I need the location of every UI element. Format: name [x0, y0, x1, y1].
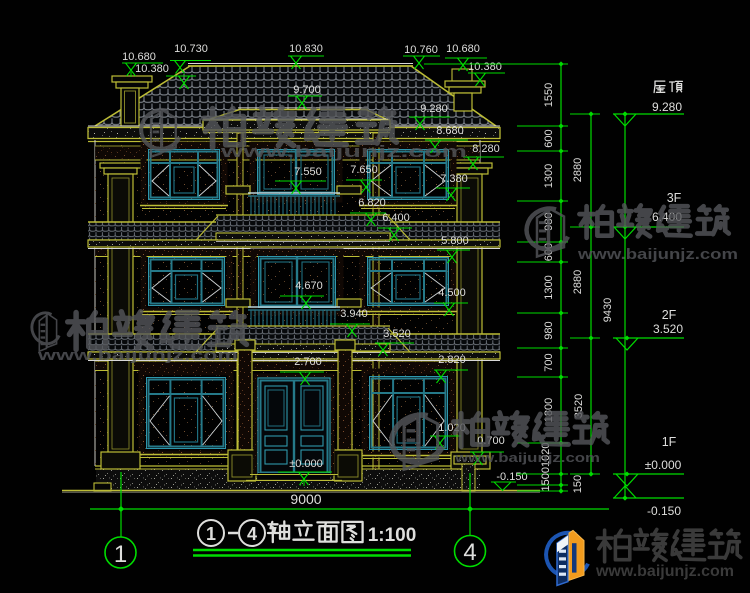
- svg-text:4.500: 4.500: [438, 287, 466, 299]
- svg-text:±0.000: ±0.000: [289, 458, 323, 470]
- svg-text:2880: 2880: [572, 158, 584, 182]
- svg-text:7.650: 7.650: [350, 164, 378, 176]
- svg-text:1: 1: [206, 524, 216, 544]
- svg-text:600: 600: [543, 129, 555, 147]
- svg-text:5.800: 5.800: [441, 235, 469, 247]
- svg-text:www.baijunjz.com: www.baijunjz.com: [36, 347, 238, 364]
- svg-text:9.280: 9.280: [652, 100, 682, 114]
- svg-text:2880: 2880: [572, 270, 584, 294]
- svg-text:www.baijunjz.com: www.baijunjz.com: [595, 563, 734, 580]
- svg-text:3.520: 3.520: [653, 322, 683, 336]
- svg-text:10.380: 10.380: [468, 61, 502, 73]
- svg-text:2F: 2F: [662, 308, 677, 322]
- svg-text:7.550: 7.550: [294, 166, 322, 178]
- svg-text:www.baijunjz.com: www.baijunjz.com: [454, 450, 600, 465]
- svg-text:4: 4: [247, 524, 257, 544]
- svg-text:±0.000: ±0.000: [645, 458, 682, 472]
- svg-text:-0.150: -0.150: [496, 471, 527, 483]
- svg-text:1:100: 1:100: [368, 525, 417, 546]
- svg-text:3.940: 3.940: [340, 308, 368, 320]
- svg-text:-0.150: -0.150: [647, 504, 681, 518]
- svg-text:1300: 1300: [543, 275, 555, 299]
- svg-text:www.baijunjz.com: www.baijunjz.com: [219, 143, 467, 161]
- svg-text:9000: 9000: [290, 491, 321, 507]
- svg-text:6.820: 6.820: [358, 197, 386, 209]
- svg-text:700: 700: [543, 353, 555, 371]
- svg-text:10.680: 10.680: [122, 51, 156, 63]
- svg-text:10.760: 10.760: [404, 44, 438, 56]
- svg-text:3.520: 3.520: [383, 328, 411, 340]
- svg-text:1F: 1F: [662, 435, 677, 449]
- svg-text:150: 150: [572, 475, 584, 493]
- svg-text:9.700: 9.700: [293, 84, 321, 96]
- svg-text:10.830: 10.830: [289, 43, 323, 55]
- svg-text:6.400: 6.400: [382, 212, 410, 224]
- svg-text:2.700: 2.700: [294, 356, 322, 368]
- svg-text:1550: 1550: [543, 83, 555, 107]
- svg-text:2.820: 2.820: [438, 354, 466, 366]
- svg-text:8.280: 8.280: [472, 143, 500, 155]
- svg-text:10.680: 10.680: [446, 43, 480, 55]
- svg-text:1300: 1300: [543, 164, 555, 188]
- svg-text:9430: 9430: [602, 298, 614, 322]
- svg-text:7.380: 7.380: [440, 173, 468, 185]
- svg-text:www.baijunjz.com: www.baijunjz.com: [577, 246, 738, 263]
- svg-text:9.280: 9.280: [420, 103, 448, 115]
- svg-text:980: 980: [543, 321, 555, 339]
- svg-text:4: 4: [463, 539, 476, 566]
- svg-text:10.730: 10.730: [174, 43, 208, 55]
- svg-text:4.670: 4.670: [295, 280, 323, 292]
- svg-text:1: 1: [114, 541, 127, 568]
- svg-text:10.380: 10.380: [135, 63, 169, 75]
- svg-text:8.680: 8.680: [436, 125, 464, 137]
- svg-text:3F: 3F: [667, 191, 682, 205]
